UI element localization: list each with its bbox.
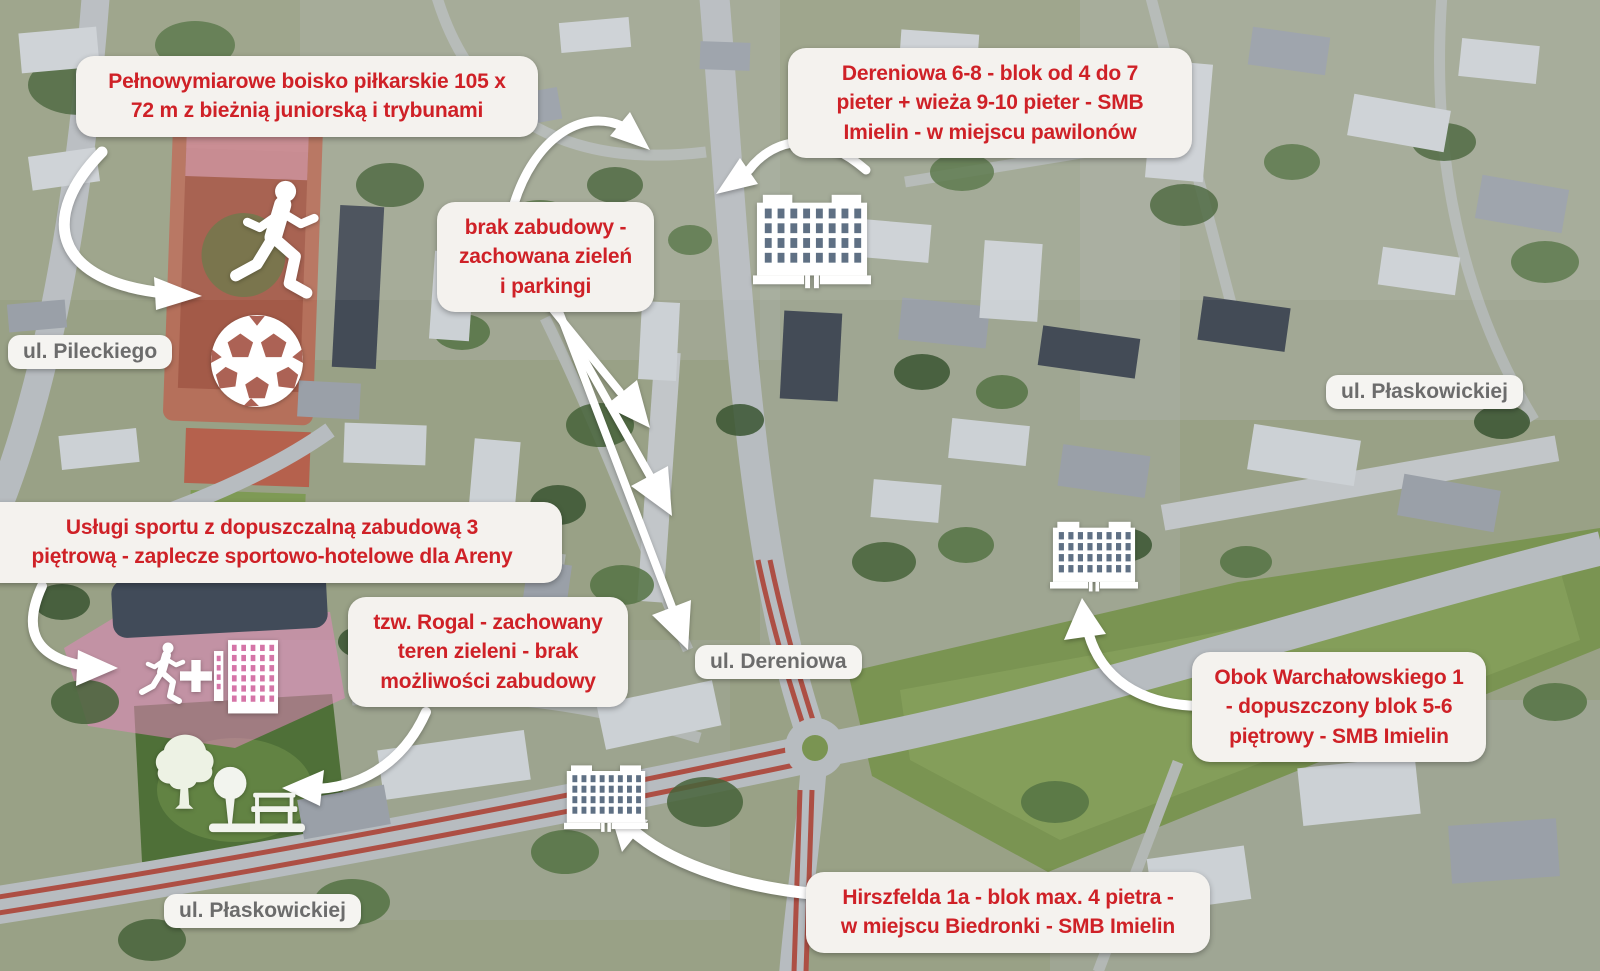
small-tree-and-bench-icon xyxy=(208,764,306,836)
annotation-rogal-green: tzw. Rogal - zachowany teren zieleni - b… xyxy=(348,597,628,707)
annotation-sport-services: Usługi sportu z dopuszczalną zabudową 3 … xyxy=(0,502,562,583)
soccer-ball-icon xyxy=(206,312,308,410)
apartment-building-icon xyxy=(753,192,871,292)
street-label-pileckiego: ul. Pileckiego xyxy=(8,335,172,369)
street-label-plaskowickiej-east: ul. Płaskowickiej xyxy=(1326,375,1523,409)
annotation-no-development: brak zabudowy - zachowana zieleń i parki… xyxy=(437,202,654,312)
street-label-plaskowickiej-south: ul. Płaskowickiej xyxy=(164,894,361,928)
plus-icon xyxy=(180,660,212,692)
apartment-building-icon xyxy=(564,764,648,834)
runner-icon xyxy=(228,178,324,312)
sports-building-icon xyxy=(214,636,278,716)
annotated-satellite-map: Pełnowymiarowe boisko piłkarskie 105 x 7… xyxy=(0,0,1600,971)
annotation-football-pitch: Pełnowymiarowe boisko piłkarskie 105 x 7… xyxy=(76,56,538,137)
apartment-building-icon xyxy=(1050,520,1138,594)
annotation-dereniowa-6-8: Dereniowa 6-8 - blok od 4 do 7 pieter + … xyxy=(788,48,1192,158)
annotation-hirszfelda: Hirszfelda 1a - blok max. 4 pietra - w m… xyxy=(806,872,1210,953)
street-label-dereniowa: ul. Dereniowa xyxy=(695,645,862,679)
annotation-warchalowskiego: Obok Warchałowskiego 1 - dopuszczony blo… xyxy=(1192,652,1486,762)
